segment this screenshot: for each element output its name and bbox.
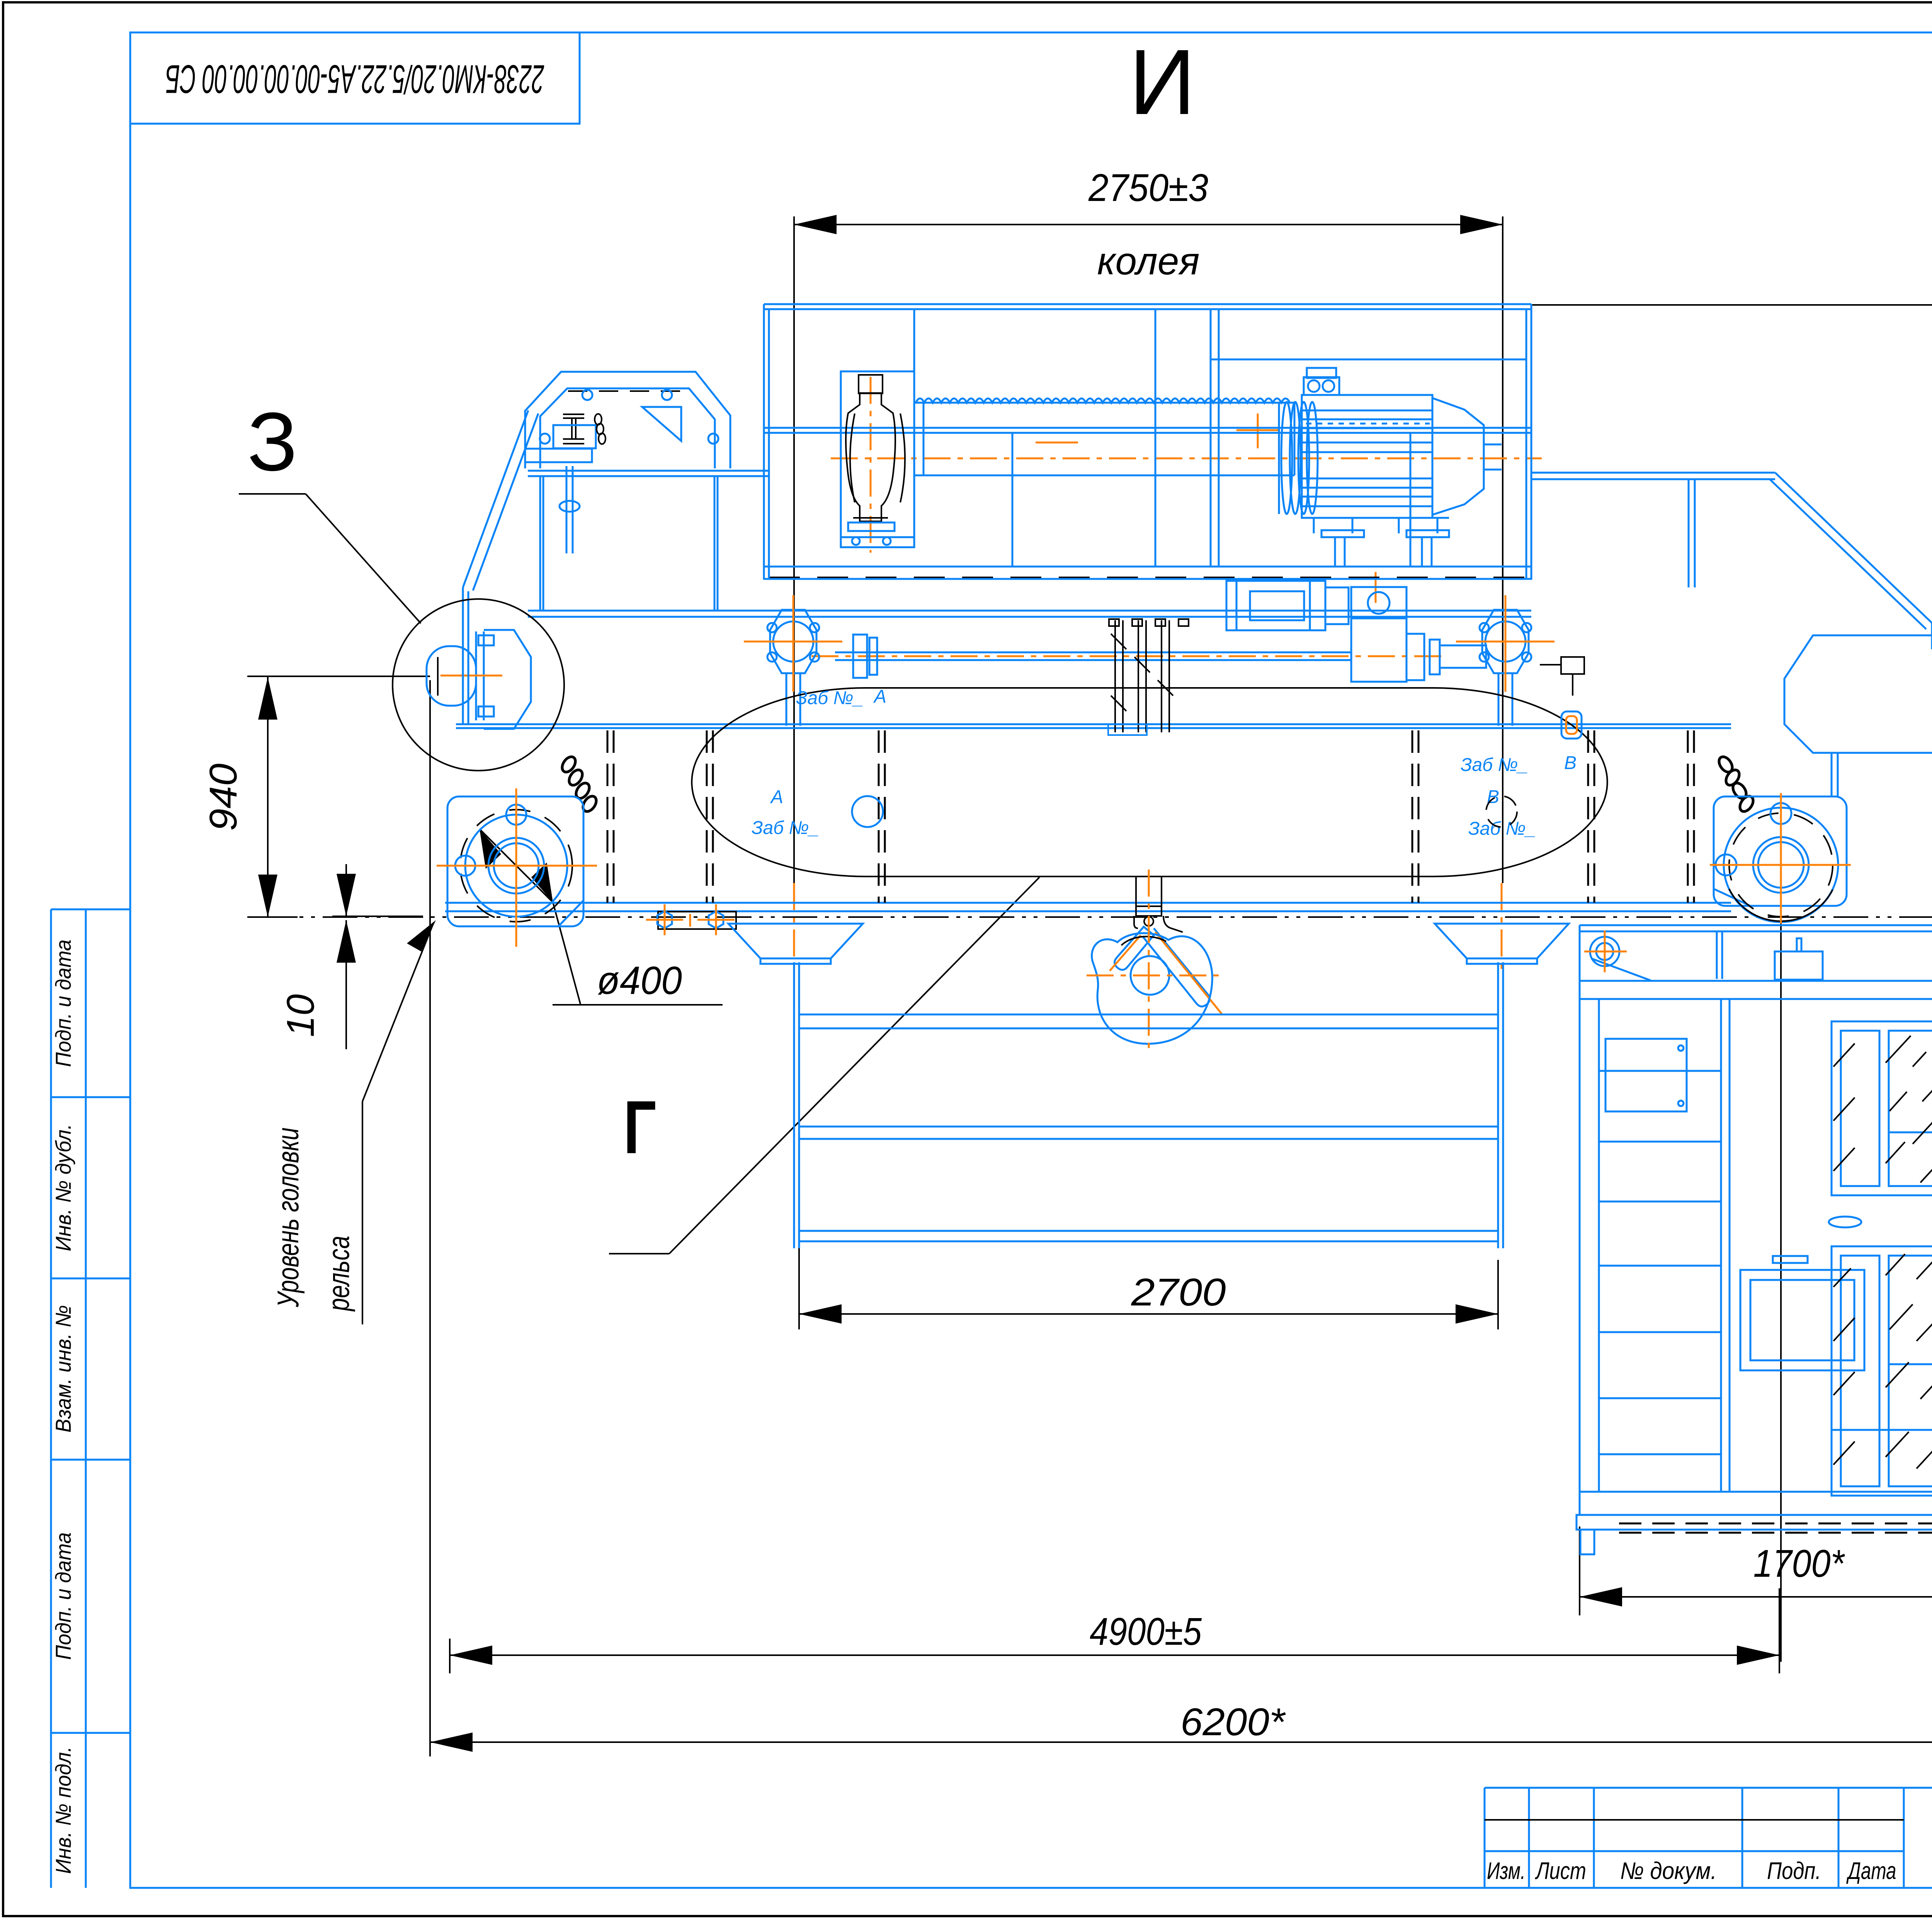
svg-text:1700*: 1700* (1753, 1542, 1845, 1585)
svg-text:Заб №_: Заб №_ (752, 818, 819, 838)
svg-text:Подп.: Подп. (1767, 1858, 1821, 1884)
svg-text:Изм.: Изм. (1487, 1858, 1526, 1884)
svg-text:№ докум.: № докум. (1620, 1858, 1717, 1884)
svg-text:колея: колея (1097, 240, 1200, 283)
svg-text:Лист: Лист (1535, 1858, 1586, 1884)
svg-text:Г: Г (624, 1085, 656, 1169)
svg-text:Дата: Дата (1846, 1858, 1896, 1884)
svg-text:Заб №_: Заб №_ (1468, 819, 1536, 839)
svg-text:Уровень головки: Уровень головки (271, 1128, 305, 1308)
svg-text:А: А (770, 787, 783, 807)
svg-text:Заб №_: Заб №_ (1461, 755, 1528, 775)
svg-text:2750±3: 2750±3 (1088, 166, 1208, 209)
svg-text:10: 10 (279, 994, 322, 1037)
svg-text:4900±5: 4900±5 (1090, 1610, 1202, 1653)
svg-text:Инв. № подл.: Инв. № подл. (51, 1746, 75, 1874)
svg-text:Заб №_: Заб №_ (796, 688, 864, 708)
svg-text:2700: 2700 (1131, 1271, 1226, 1314)
svg-text:6200*: 6200* (1180, 1700, 1286, 1744)
svg-text:рельса: рельса (321, 1236, 355, 1312)
svg-text:И: И (1129, 30, 1196, 134)
svg-text:Подп. и дата: Подп. и дата (51, 939, 75, 1067)
svg-text:А: А (873, 686, 886, 707)
svg-text:Взам. инв. №: Взам. инв. № (51, 1305, 75, 1433)
svg-text:В: В (1564, 753, 1577, 773)
svg-text:Подп. и дата: Подп. и дата (51, 1532, 75, 1660)
svg-text:З: З (247, 395, 298, 488)
svg-text:ø400: ø400 (597, 958, 682, 1002)
svg-text:940: 940 (202, 764, 245, 831)
svg-text:2238-КМ0.20/5.22.А5-00.00.00.0: 2238-КМ0.20/5.22.А5-00.00.00.00 СБ (165, 56, 544, 101)
svg-text:Инв. № дубл.: Инв. № дубл. (51, 1124, 75, 1251)
